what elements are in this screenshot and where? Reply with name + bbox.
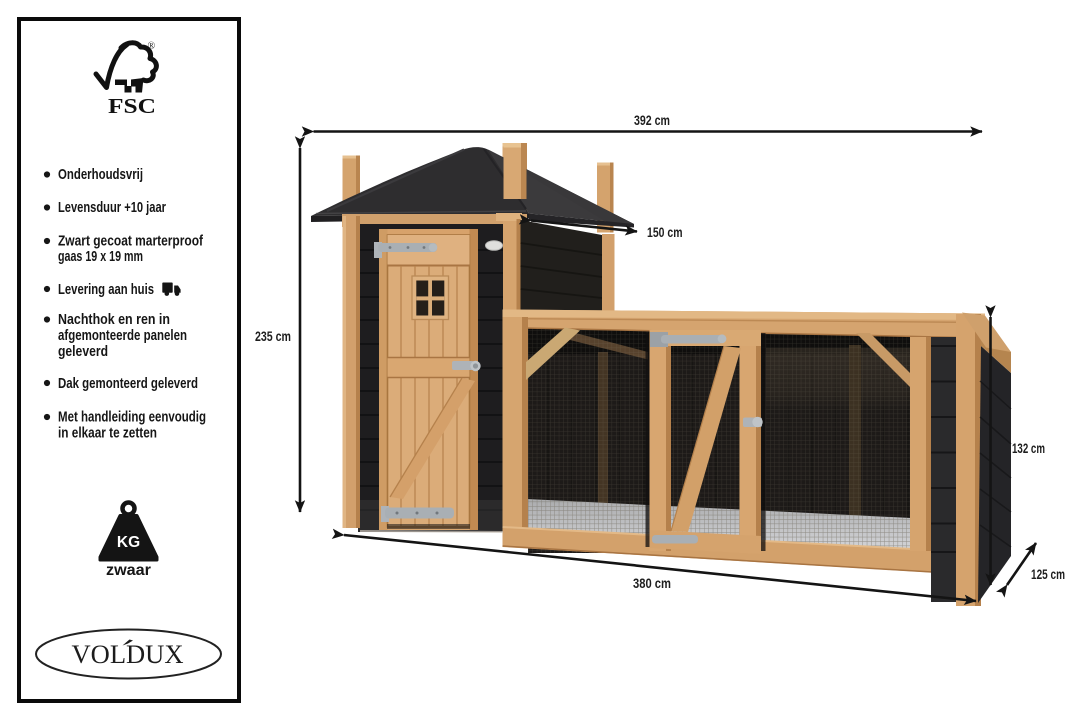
svg-text:in elkaar te zetten: in elkaar te zetten — [58, 425, 157, 442]
svg-text:150 cm: 150 cm — [647, 224, 683, 240]
svg-text:FSC: FSC — [108, 94, 156, 118]
svg-text:132 cm: 132 cm — [1012, 440, 1045, 456]
svg-text:geleverd: geleverd — [58, 343, 108, 360]
svg-text:KG: KG — [117, 534, 140, 551]
svg-text:VOLDUX: VOLDUX — [72, 640, 184, 669]
svg-text:Levensduur +10 jaar: Levensduur +10 jaar — [58, 199, 166, 216]
svg-text:®: ® — [148, 41, 156, 52]
svg-text:Onderhoudsvrij: Onderhoudsvrij — [58, 166, 143, 183]
svg-text:125 cm: 125 cm — [1031, 566, 1065, 582]
svg-text:Dak gemonteerd geleverd: Dak gemonteerd geleverd — [58, 375, 198, 392]
svg-text:392 cm: 392 cm — [634, 112, 670, 128]
svg-text:gaas 19 x 19 mm: gaas 19 x 19 mm — [58, 248, 143, 265]
svg-text:235 cm: 235 cm — [255, 328, 291, 344]
svg-text:zwaar: zwaar — [106, 562, 151, 579]
svg-text:Zwart gecoat marterproof: Zwart gecoat marterproof — [58, 233, 204, 250]
svg-text:afgemonteerde panelen: afgemonteerde panelen — [58, 327, 187, 344]
svg-text:Levering aan huis: Levering aan huis — [58, 281, 154, 298]
svg-text:380 cm: 380 cm — [633, 575, 671, 591]
svg-text:Met handleiding eenvoudig: Met handleiding eenvoudig — [58, 409, 206, 426]
svg-text:Nachthok en ren in: Nachthok en ren in — [58, 311, 170, 328]
